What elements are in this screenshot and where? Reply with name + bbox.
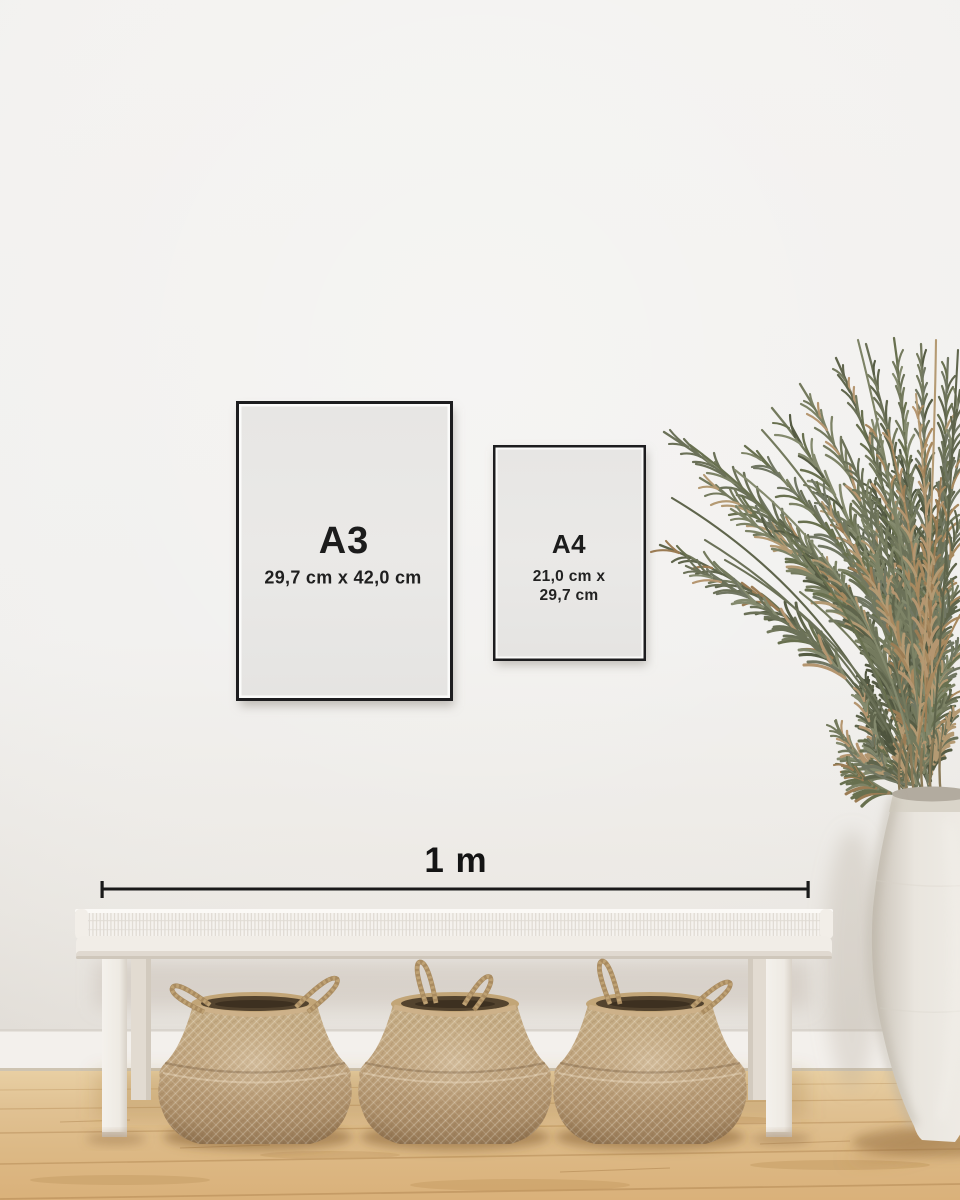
svg-text:A4: A4 — [552, 529, 586, 559]
svg-text:29,7 cm x 42,0 cm: 29,7 cm x 42,0 cm — [264, 568, 421, 588]
svg-text:1 m: 1 m — [424, 841, 487, 880]
svg-text:A3: A3 — [319, 520, 370, 562]
svg-text:21,0 cm x: 21,0 cm x — [533, 568, 606, 585]
svg-text:29,7 cm: 29,7 cm — [540, 587, 599, 604]
